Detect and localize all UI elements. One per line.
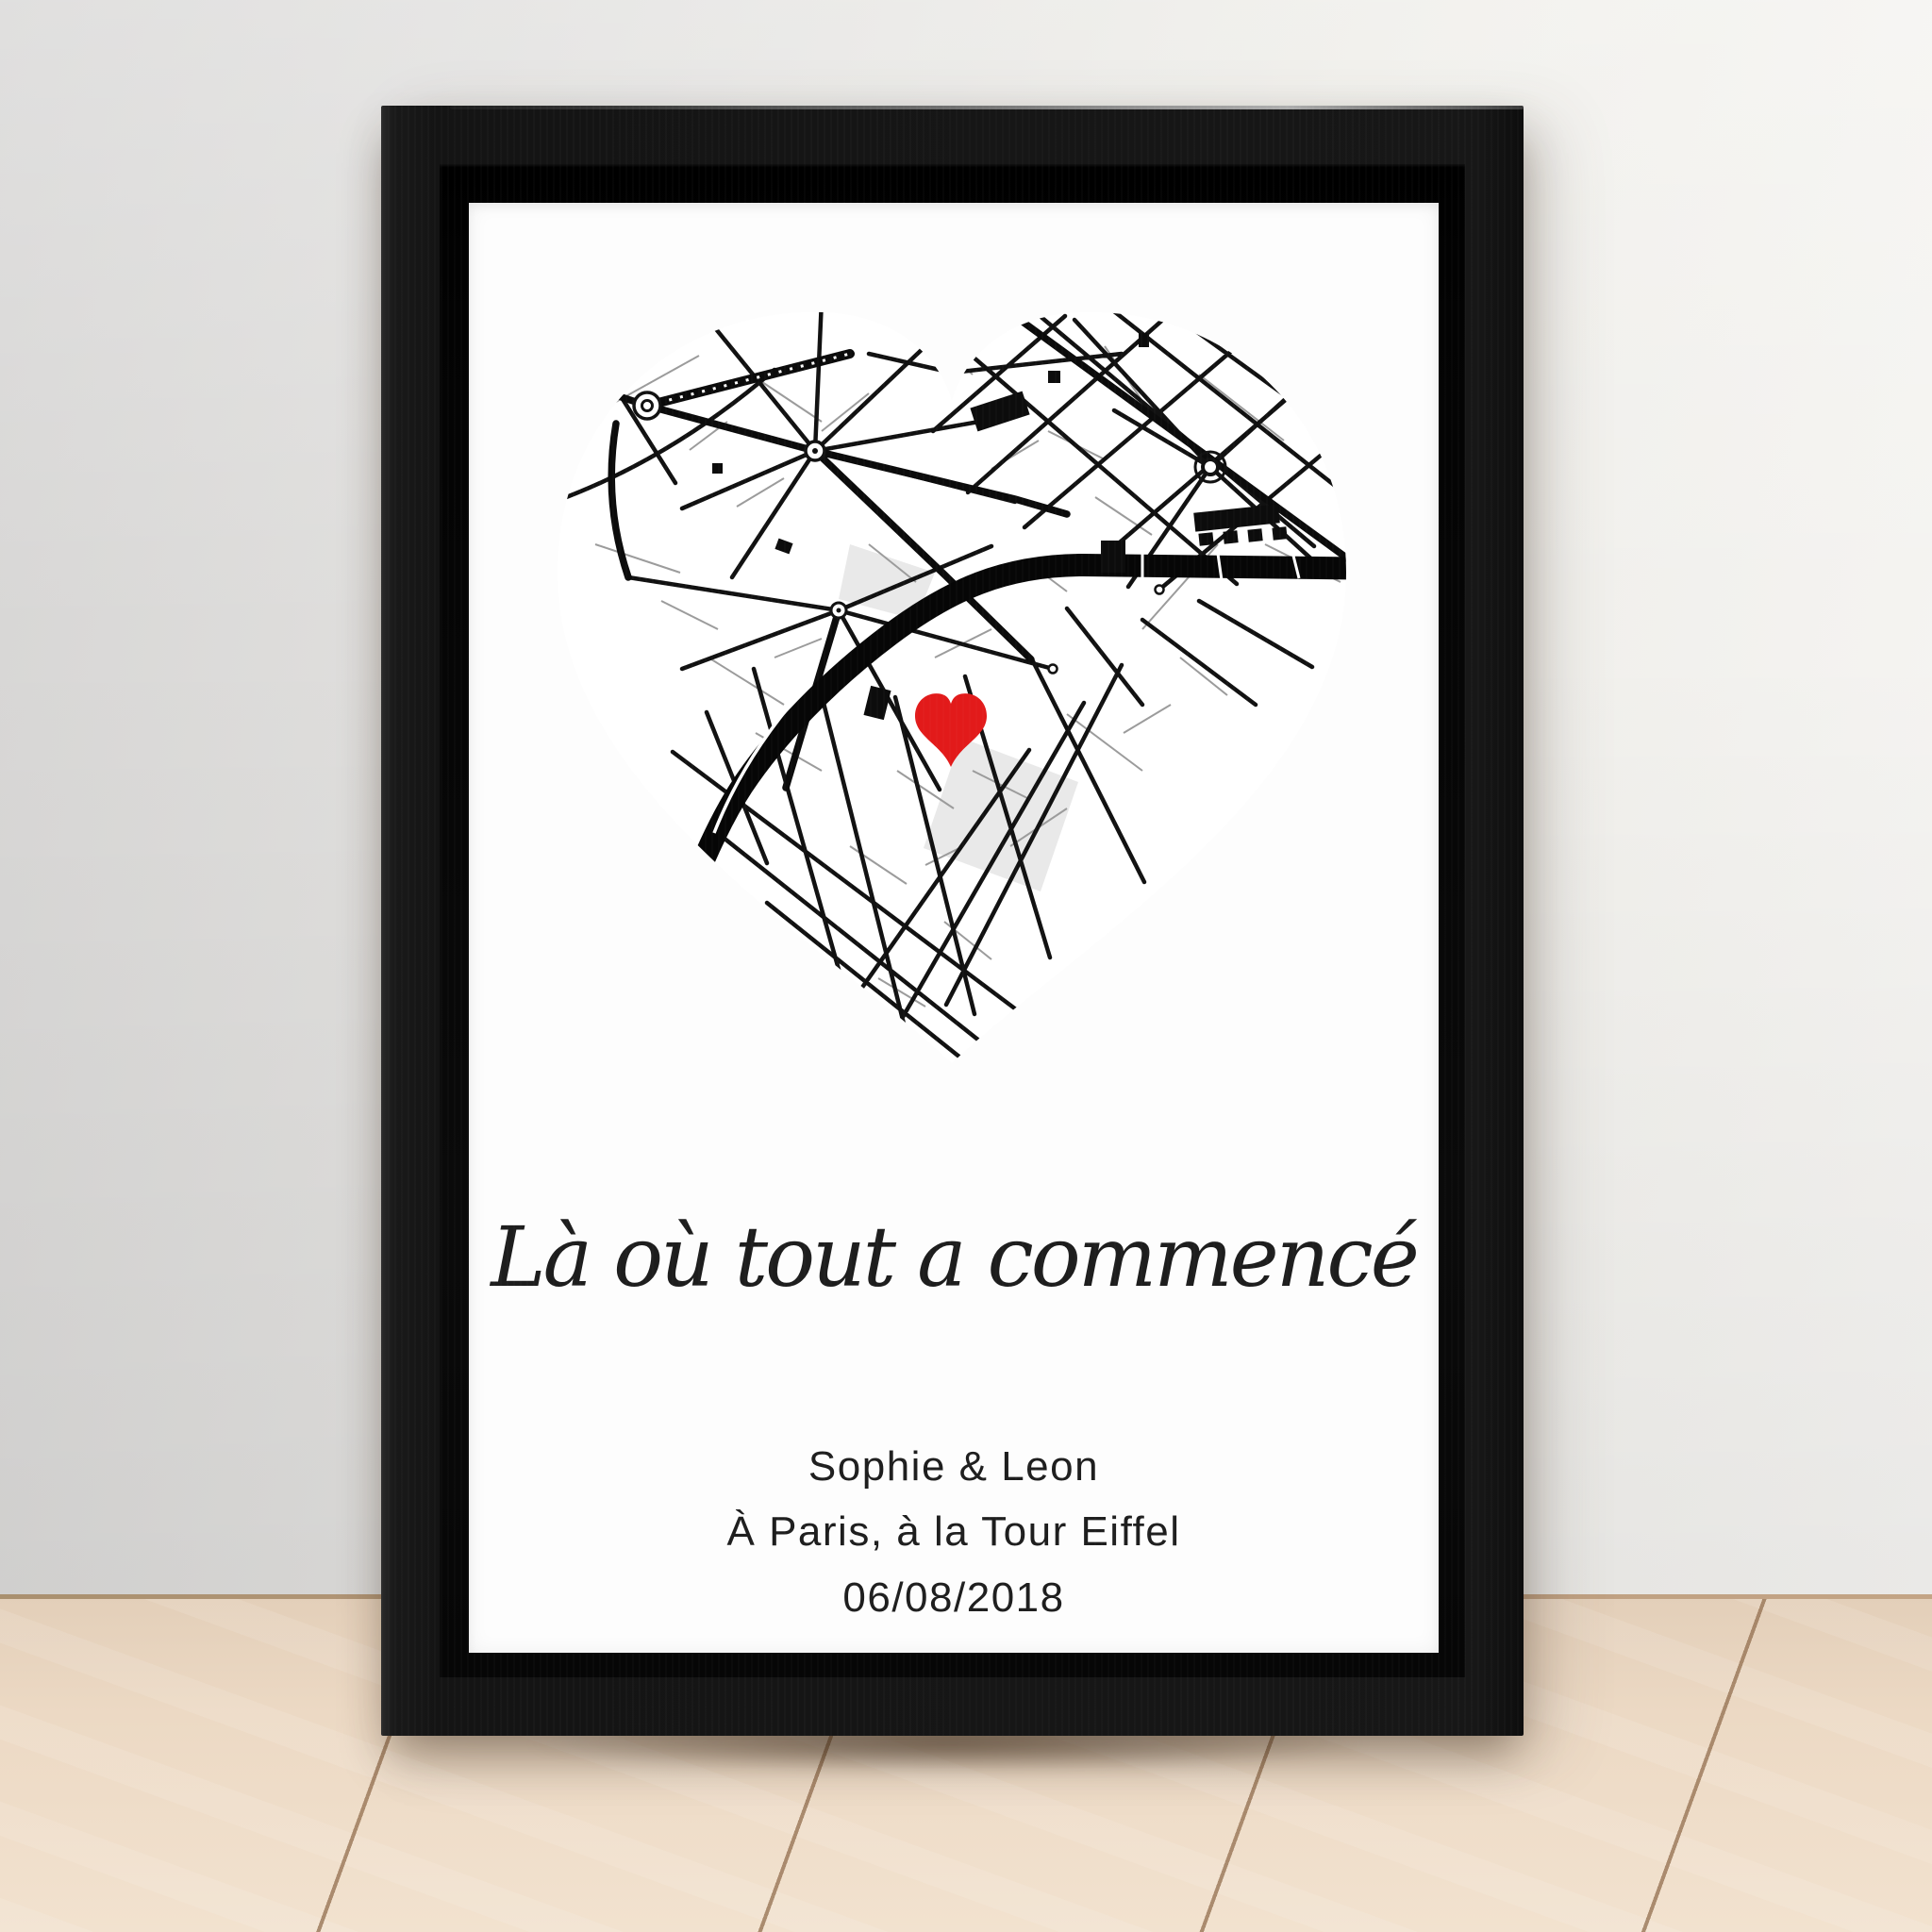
frame-inner-shadow: Là où tout a commencé Sophie & Leon À Pa… — [440, 164, 1465, 1677]
scene: Là où tout a commencé Sophie & Leon À Pa… — [0, 0, 1932, 1932]
date-text: 06/08/2018 — [842, 1575, 1064, 1621]
poster-details: Sophie & Leon À Paris, à la Tour Eiffel … — [469, 1444, 1439, 1621]
heart-map — [539, 261, 1369, 1073]
map-background — [539, 261, 1369, 1073]
names-text: Sophie & Leon — [808, 1444, 1099, 1490]
poster-canvas: Là où tout a commencé Sophie & Leon À Pa… — [469, 203, 1439, 1653]
location-text: À Paris, à la Tour Eiffel — [727, 1509, 1181, 1555]
picture-frame: Là où tout a commencé Sophie & Leon À Pa… — [381, 106, 1524, 1736]
quote-text: Là où tout a commencé — [469, 1208, 1439, 1306]
